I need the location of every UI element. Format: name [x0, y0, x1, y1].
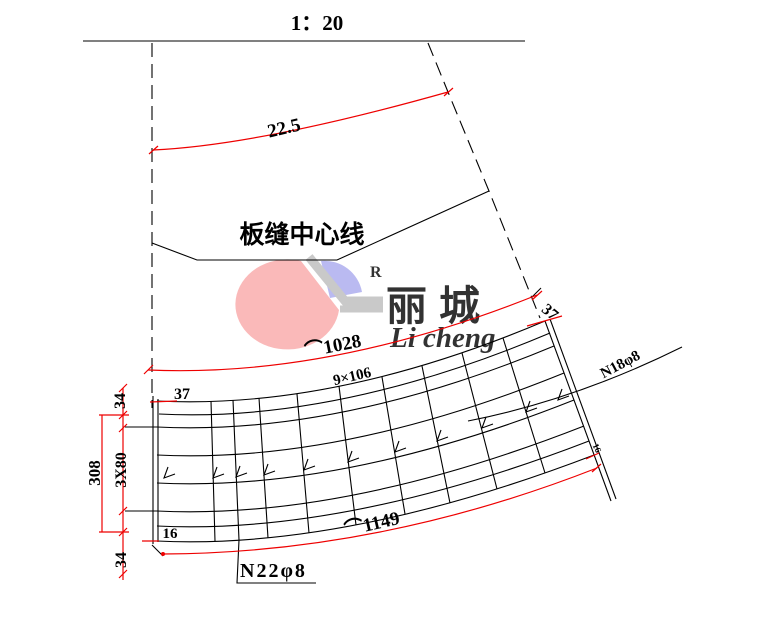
seam-centerline-right [428, 43, 540, 318]
registered-mark: R [370, 264, 382, 281]
brand-name-en: Li cheng [389, 322, 496, 354]
rebar-label-n18: N18φ8 [598, 348, 643, 382]
rebar-detail-drawing: R 丽城 Li cheng [0, 0, 770, 623]
dim-16-left: 16 [163, 526, 179, 542]
licheng-watermark: R 丽城 Li cheng [235, 257, 495, 354]
dim-37-left: 37 [174, 386, 190, 403]
rebar-label-n22: N22φ8 [240, 560, 307, 582]
arc-1149-start-dot [161, 552, 165, 556]
band-right-edge [545, 319, 616, 501]
dim-16-right: 16 [591, 442, 604, 455]
seam-centerline-label: 板缝中心线 [239, 220, 364, 249]
cad-drawing-canvas: R 丽城 Li cheng [0, 0, 770, 623]
dim-34-top: 34 [112, 393, 129, 409]
scale-label: 1：20 [291, 11, 344, 35]
dim-37-right: 37 [538, 301, 561, 324]
dim-3x80: 3X80 [113, 452, 130, 488]
dim-308: 308 [85, 460, 104, 486]
dim-spacing-9x106: 9×106 [332, 365, 374, 389]
n18-label-leader [468, 347, 682, 421]
arc-22-5-end-ticks [149, 88, 453, 154]
dim-34-bottom: 34 [113, 552, 130, 568]
band-left-edge [153, 396, 158, 544]
dim-arc-22-5: 22.5 [266, 115, 303, 143]
panel-arc-22-5 [153, 92, 448, 150]
